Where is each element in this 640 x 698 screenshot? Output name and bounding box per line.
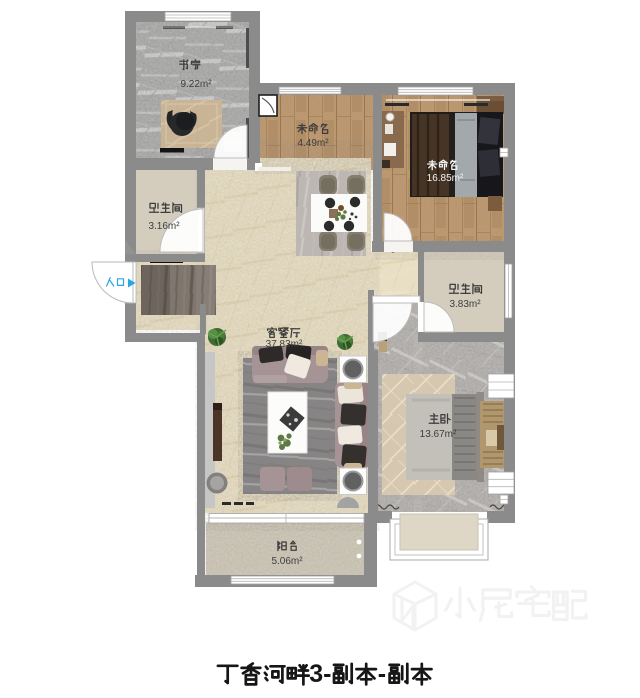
svg-text:3.83m²: 3.83m² bbox=[449, 299, 481, 310]
svg-text:-: - bbox=[378, 660, 386, 688]
svg-text:37.83m²: 37.83m² bbox=[266, 339, 303, 350]
svg-text:3-: 3- bbox=[309, 660, 331, 688]
svg-text:3.16m²: 3.16m² bbox=[148, 221, 180, 232]
svg-text:13.67m²: 13.67m² bbox=[420, 429, 457, 440]
svg-text:9.22m²: 9.22m² bbox=[180, 79, 212, 90]
svg-text:16.85m²: 16.85m² bbox=[427, 173, 464, 184]
svg-text:4.49m²: 4.49m² bbox=[297, 138, 329, 149]
svg-text:5.06m²: 5.06m² bbox=[271, 556, 303, 567]
